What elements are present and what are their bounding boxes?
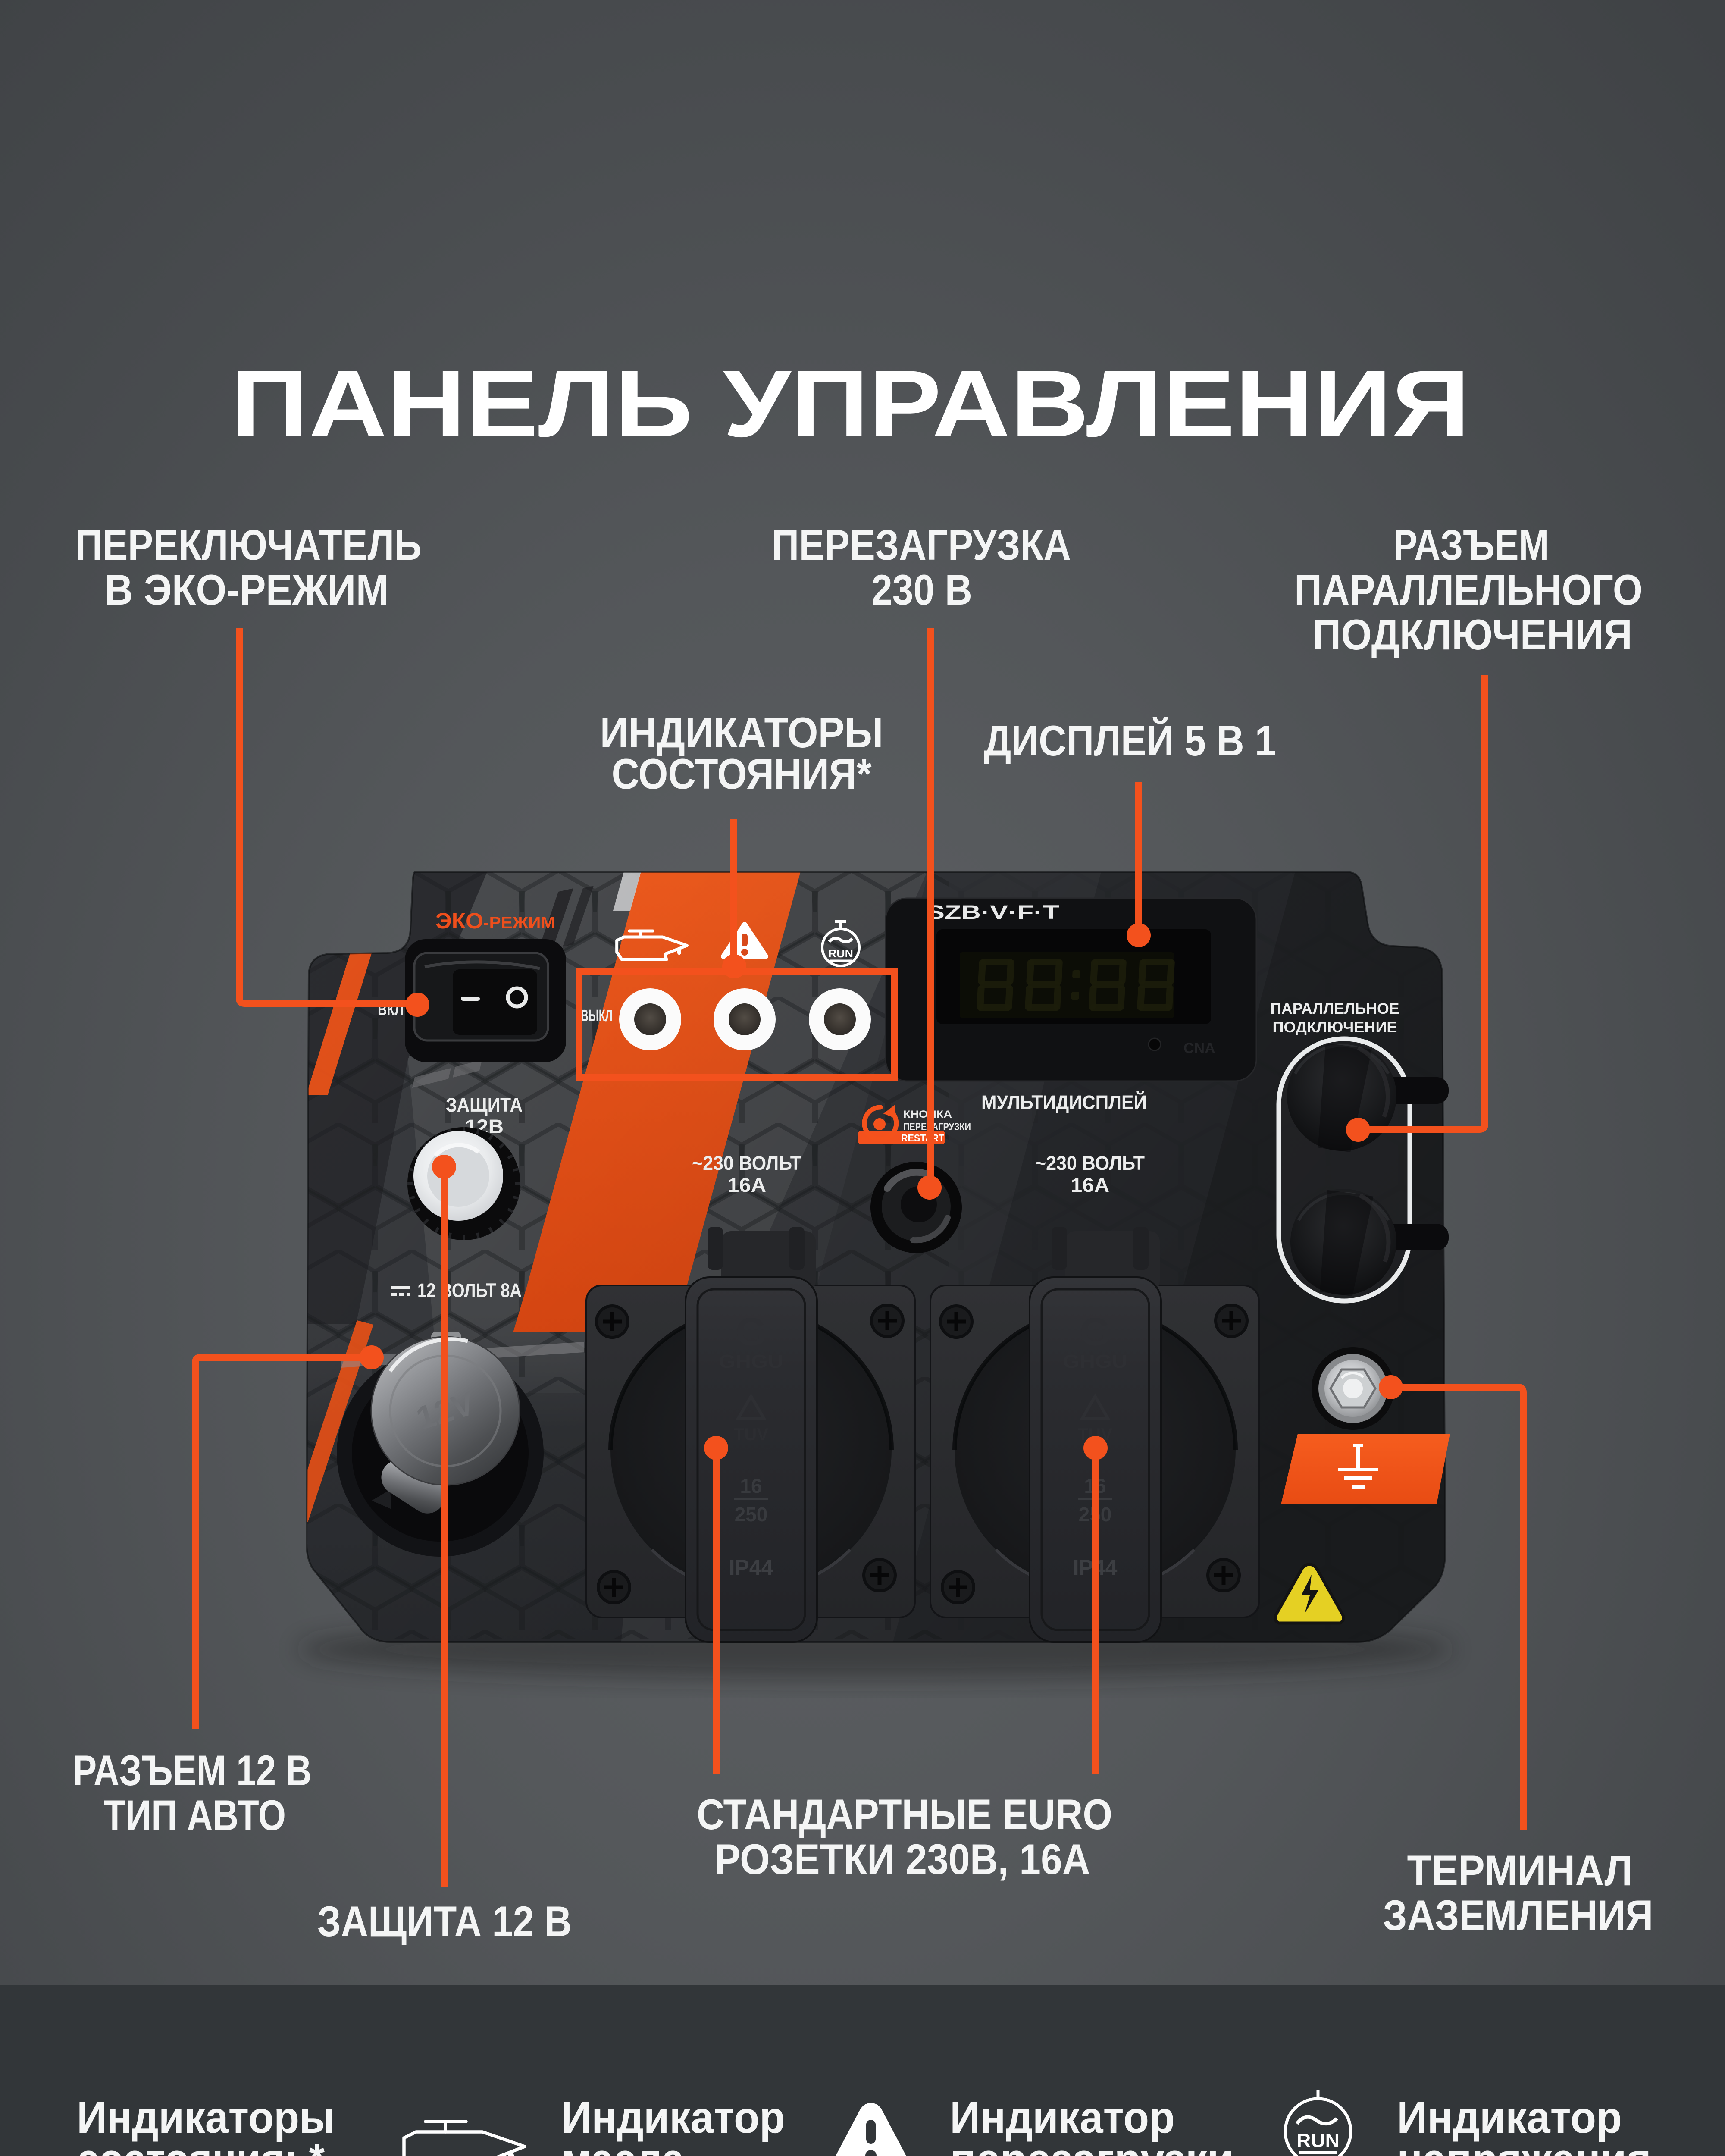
- svg-text:состояния: *: состояния: *: [77, 2134, 325, 2156]
- svg-text:ПОДКЛЮЧЕНИЯ: ПОДКЛЮЧЕНИЯ: [1312, 611, 1632, 658]
- svg-text:~230 ВОЛЬТ: ~230 ВОЛЬТ: [692, 1152, 801, 1174]
- svg-text:ПАРАЛЛЕЛЬНОГО: ПАРАЛЛЕЛЬНОГО: [1294, 566, 1643, 614]
- svg-text:напряжения: напряжения: [1397, 2134, 1651, 2156]
- svg-text:ЗАЗЕМЛЕНИЯ: ЗАЗЕМЛЕНИЯ: [1383, 1891, 1653, 1939]
- svg-text:ПЕРЕКЛЮЧАТЕЛЬ: ПЕРЕКЛЮЧАТЕЛЬ: [75, 521, 422, 569]
- svg-text:МУЛЬТИДИСПЛЕЙ: МУЛЬТИДИСПЛЕЙ: [981, 1091, 1147, 1113]
- svg-text:РАЗЪЕМ: РАЗЪЕМ: [1393, 521, 1549, 569]
- svg-text:перезагрузки: перезагрузки: [950, 2134, 1234, 2156]
- svg-text:ПОДКЛЮЧЕНИЕ: ПОДКЛЮЧЕНИЕ: [1273, 1019, 1397, 1036]
- svg-text:ТЕРМИНАЛ: ТЕРМИНАЛ: [1407, 1846, 1633, 1894]
- svg-text:масла: масла: [561, 2134, 685, 2156]
- svg-text:SZB·V·F·T: SZB·V·F·T: [927, 901, 1059, 923]
- svg-text:В ЭКО-РЕЖИМ: В ЭКО-РЕЖИМ: [105, 566, 389, 614]
- svg-text:СТАНДАРТНЫЕ EURO: СТАНДАРТНЫЕ EURO: [697, 1790, 1112, 1838]
- svg-text:RUN: RUN: [828, 947, 853, 960]
- svg-text:ТИП АВТО: ТИП АВТО: [104, 1791, 286, 1839]
- svg-text:16А: 16А: [1071, 1174, 1109, 1196]
- svg-text:GHGU: GHGU: [1063, 1351, 1127, 1372]
- svg-text:ПАНЕЛЬ УПРАВЛЕНИЯ: ПАНЕЛЬ УПРАВЛЕНИЯ: [231, 351, 1470, 457]
- svg-text:16: 16: [740, 1475, 762, 1497]
- svg-text:GHGU: GHGU: [719, 1351, 783, 1372]
- svg-text:RUN: RUN: [1296, 2130, 1340, 2151]
- svg-text:12 ВОЛЬТ 8А: 12 ВОЛЬТ 8А: [417, 1279, 522, 1301]
- svg-text:ИНДИКАТОРЫ: ИНДИКАТОРЫ: [600, 708, 883, 756]
- svg-text:16А: 16А: [727, 1174, 766, 1196]
- svg-text:ЗАЩИТА: ЗАЩИТА: [446, 1094, 523, 1116]
- svg-text:ЗАЩИТА 12 В: ЗАЩИТА 12 В: [317, 1897, 572, 1945]
- svg-text:G: G: [1080, 1310, 1111, 1354]
- svg-text:230 В: 230 В: [871, 566, 972, 614]
- svg-text:IP44: IP44: [729, 1555, 773, 1579]
- svg-text:ПЕРЕЗАГРУЗКИ: ПЕРЕЗАГРУЗКИ: [903, 1121, 971, 1133]
- svg-text:ПЕРЕЗАГРУЗКА: ПЕРЕЗАГРУЗКА: [772, 521, 1071, 569]
- svg-text:ПАРАЛЛЕЛЬНОЕ: ПАРАЛЛЕЛЬНОЕ: [1271, 1000, 1399, 1017]
- svg-text:РАЗЪЕМ 12 В: РАЗЪЕМ 12 В: [73, 1746, 312, 1794]
- svg-text:G: G: [736, 1310, 767, 1354]
- svg-text:RESTART: RESTART: [901, 1132, 944, 1144]
- svg-text:РОЗЕТКИ 230В, 16А: РОЗЕТКИ 230В, 16А: [715, 1835, 1090, 1883]
- svg-text:CNA: CNA: [1183, 1040, 1215, 1056]
- svg-text:СОСТОЯНИЯ*: СОСТОЯНИЯ*: [612, 750, 872, 798]
- svg-text:TUV: TUV: [734, 1425, 768, 1444]
- svg-text:250: 250: [735, 1503, 768, 1526]
- svg-text:ВЫКЛ: ВЫКЛ: [581, 1007, 613, 1025]
- svg-text:~230 ВОЛЬТ: ~230 ВОЛЬТ: [1035, 1152, 1145, 1174]
- svg-text:ДИСПЛЕЙ 5 В 1: ДИСПЛЕЙ 5 В 1: [984, 717, 1276, 765]
